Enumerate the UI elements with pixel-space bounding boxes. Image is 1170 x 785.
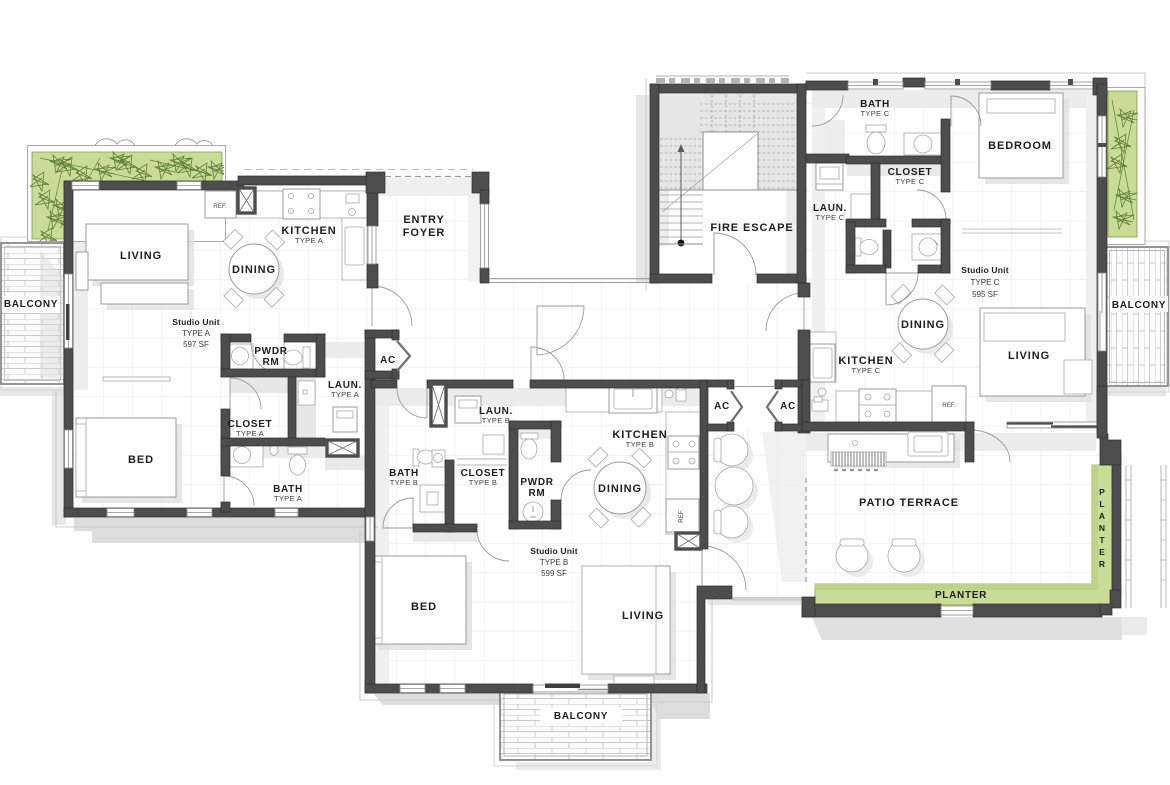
svg-text:TYPE B: TYPE B — [482, 416, 510, 425]
svg-text:R: R — [1099, 559, 1105, 569]
svg-text:DINING: DINING — [901, 319, 945, 331]
svg-text:BEDROOM: BEDROOM — [988, 140, 1052, 152]
svg-text:TYPE B: TYPE B — [469, 478, 497, 487]
svg-text:DINING: DINING — [232, 264, 276, 276]
svg-text:N: N — [1099, 523, 1105, 533]
svg-text:A: A — [1099, 511, 1105, 521]
svg-text:PLANTER: PLANTER — [935, 590, 987, 601]
svg-text:BALCONY: BALCONY — [1112, 300, 1166, 311]
svg-text:BALCONY: BALCONY — [4, 299, 58, 310]
svg-text:E: E — [1099, 547, 1105, 557]
svg-text:TYPE A: TYPE A — [274, 494, 302, 503]
svg-text:LIVING: LIVING — [120, 250, 162, 262]
svg-text:T: T — [1099, 535, 1105, 545]
svg-text:TYPE A: TYPE A — [295, 236, 323, 245]
svg-text:BED: BED — [411, 601, 437, 613]
svg-text:REF.: REF. — [942, 402, 956, 409]
svg-text:LIVING: LIVING — [1008, 350, 1050, 362]
svg-text:DINING: DINING — [598, 483, 642, 495]
svg-text:P: P — [1099, 487, 1105, 497]
svg-text:RM: RM — [529, 488, 546, 499]
svg-text:AC: AC — [780, 401, 796, 412]
svg-text:TYPE C: TYPE C — [852, 366, 881, 375]
svg-text:TYPE C: TYPE C — [896, 177, 925, 186]
svg-text:ENTRY: ENTRY — [403, 214, 444, 226]
svg-text:TYPE A: TYPE A — [331, 390, 359, 399]
svg-text:PATIO TERRACE: PATIO TERRACE — [859, 497, 959, 509]
svg-text:FIRE ESCAPE: FIRE ESCAPE — [710, 222, 793, 234]
svg-text:TYPE B: TYPE B — [626, 440, 654, 449]
svg-text:PWDR: PWDR — [520, 477, 553, 488]
svg-text:TYPE C: TYPE C — [861, 109, 890, 118]
svg-text:Studio Unit: Studio Unit — [530, 546, 578, 556]
svg-text:AC: AC — [714, 401, 730, 412]
svg-text:TYPE A: TYPE A — [236, 429, 264, 438]
svg-text:TYPE B: TYPE B — [540, 558, 568, 567]
svg-text:TYPE B: TYPE B — [390, 478, 418, 487]
svg-text:TYPE A: TYPE A — [182, 329, 211, 338]
svg-text:REF.: REF. — [213, 203, 227, 210]
svg-text:L: L — [1099, 499, 1104, 509]
svg-text:Studio Unit: Studio Unit — [172, 317, 220, 327]
svg-text:597 SF: 597 SF — [183, 340, 209, 349]
svg-text:595 SF: 595 SF — [972, 290, 998, 299]
svg-text:REF.: REF. — [678, 509, 685, 523]
svg-text:FOYER: FOYER — [403, 227, 445, 239]
svg-text:PWDR: PWDR — [254, 346, 287, 357]
svg-text:TYPE C: TYPE C — [816, 213, 845, 222]
svg-text:BED: BED — [128, 454, 154, 466]
svg-text:TYPE C: TYPE C — [971, 278, 1000, 287]
svg-text:LIVING: LIVING — [622, 610, 664, 622]
svg-text:AC: AC — [380, 355, 396, 366]
svg-text:599 SF: 599 SF — [541, 569, 567, 578]
svg-text:BALCONY: BALCONY — [554, 711, 608, 722]
svg-text:Studio Unit: Studio Unit — [961, 265, 1009, 275]
svg-text:RM: RM — [263, 357, 280, 368]
